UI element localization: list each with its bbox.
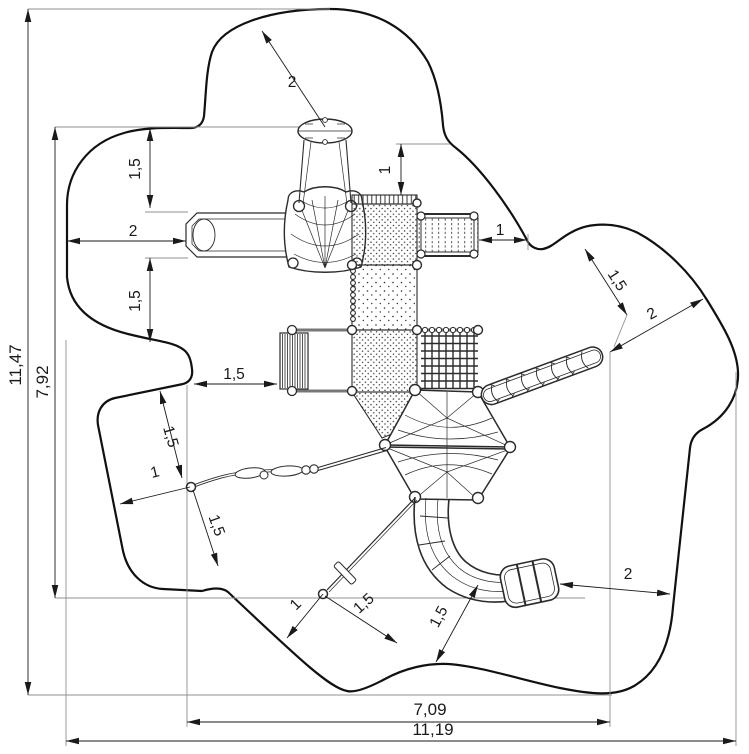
- plan-svg: 2 1,5 2 1,5 1,5 1 1 1,5 2 1,5 1 1,5 1 1,…: [0, 0, 749, 754]
- dotted-platform-upper: [352, 195, 417, 265]
- vertical-ladder: [280, 326, 352, 396]
- dimension-label: 1,5: [350, 590, 377, 617]
- climbing-net-grid: [417, 327, 478, 389]
- crawl-tunnel: [186, 213, 300, 257]
- dimension-label: 11,47: [6, 344, 25, 385]
- dimension-label: 1,5: [604, 267, 630, 294]
- ground-anchor-left: [187, 483, 196, 492]
- dimension-label: 1: [287, 596, 305, 614]
- dimension-label: 1: [496, 222, 505, 239]
- dimension-label: 7,92: [33, 365, 52, 398]
- dotted-platform-mid: [351, 265, 417, 330]
- dimension-label: 1: [149, 463, 161, 482]
- dimension-label: 11,19: [412, 720, 453, 739]
- dimension-labels: 2 1,5 2 1,5 1,5 1 1 1,5 2 1,5 1 1,5 1 1,…: [6, 74, 660, 739]
- diagonal-rung-ladder: [479, 344, 606, 407]
- dimension-label: 2: [624, 566, 633, 583]
- plan-drawing-canvas: 2 1,5 2 1,5 1,5 1 1 1,5 2 1,5 1 1,5 1 1,…: [0, 0, 749, 754]
- dimension-label: 2: [129, 223, 138, 240]
- dimension-label: 1,5: [127, 290, 144, 312]
- dimension-label: 1,5: [426, 603, 451, 630]
- dimension-label: 7,09: [413, 700, 446, 719]
- balance-rope-with-grips: [191, 448, 387, 488]
- dimension-label: 1,5: [159, 424, 181, 449]
- dimension-label: 2: [288, 74, 297, 91]
- bridge-ramp: [417, 212, 478, 258]
- dimension-label: 1: [377, 166, 394, 175]
- dimension-label: 1,5: [223, 366, 245, 383]
- curved-tube-slide: [414, 497, 561, 609]
- dimension-label: 1,5: [127, 158, 144, 180]
- guy-rope-turnbuckle: [327, 498, 417, 592]
- dimension-label: 2: [644, 304, 660, 323]
